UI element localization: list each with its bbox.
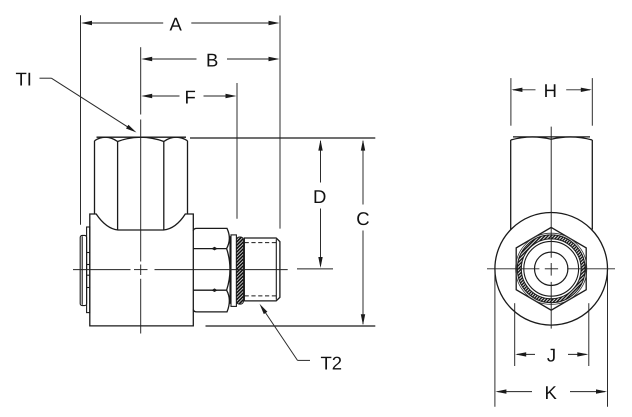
- svg-text:H: H: [544, 80, 557, 101]
- svg-text:B: B: [206, 49, 218, 70]
- svg-text:D: D: [313, 186, 326, 207]
- svg-text:C: C: [356, 208, 369, 229]
- svg-text:TI: TI: [16, 68, 32, 89]
- svg-text:K: K: [545, 382, 558, 403]
- svg-text:F: F: [185, 86, 196, 107]
- svg-text:J: J: [547, 345, 556, 366]
- svg-text:A: A: [170, 13, 183, 34]
- svg-text:T2: T2: [321, 352, 343, 373]
